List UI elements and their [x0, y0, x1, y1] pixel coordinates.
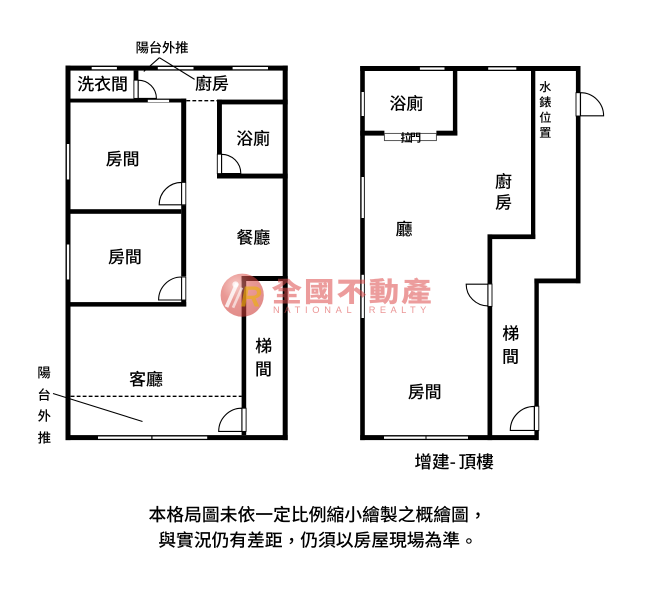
svg-text:R: R: [241, 281, 262, 313]
svg-text:NATIONAL: NATIONAL: [273, 305, 356, 315]
svg-text:REALTY: REALTY: [369, 305, 431, 315]
